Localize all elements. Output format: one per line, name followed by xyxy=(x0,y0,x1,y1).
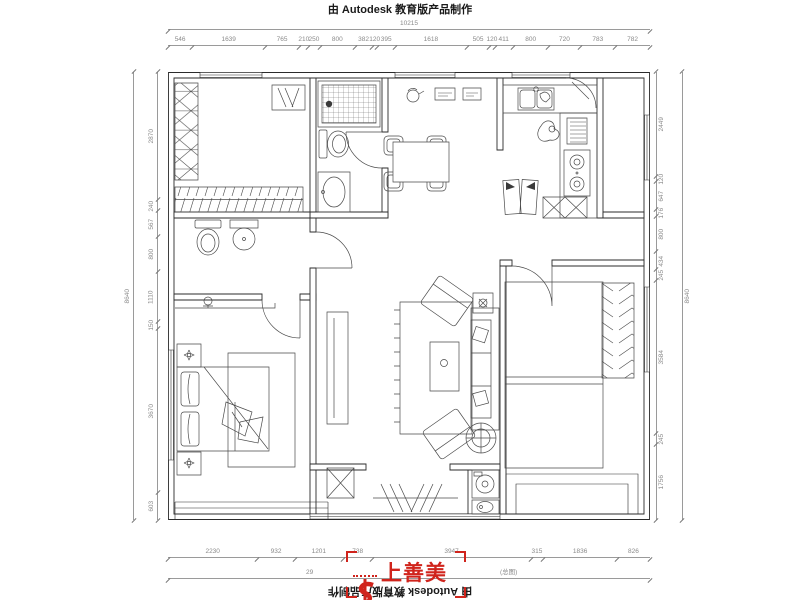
dimension-segment: 1618 xyxy=(395,34,467,46)
dimension-segment: 783 xyxy=(580,34,615,46)
bay-window-left xyxy=(175,502,328,520)
round-side-table xyxy=(466,423,496,453)
dimension-segment: 2870 xyxy=(146,72,158,200)
kitchen-sink xyxy=(518,87,554,110)
closet-rail-band xyxy=(175,187,303,212)
dimension-segment: 411 xyxy=(495,34,513,46)
window-right-1 xyxy=(645,115,650,180)
dimension-segment: 603 xyxy=(146,493,158,520)
dimension-segment: 546 xyxy=(168,34,192,46)
bedroom-1-door xyxy=(262,300,300,338)
toilet-2 xyxy=(195,220,221,255)
bay-window-right xyxy=(506,474,638,514)
dimension-segment: 1756 xyxy=(656,445,668,520)
bathroom-sink-1 xyxy=(318,172,350,212)
dimension-segment: 1639 xyxy=(192,34,265,46)
entry-door xyxy=(566,78,596,108)
bed-2 xyxy=(505,282,603,468)
bathroom-sink-2 xyxy=(230,220,258,250)
logo-s-icon xyxy=(352,574,378,600)
coffee-table xyxy=(430,342,459,391)
gas-stove xyxy=(564,150,590,196)
autodesk-banner-top-text: 由 Autodesk 教育版产品制作 xyxy=(328,4,472,16)
logo-company-name: 上善美居 xyxy=(381,554,466,600)
nightstand-1 xyxy=(177,344,201,367)
dimension-segment: 250 xyxy=(308,34,319,46)
dimension-segment: 8640 xyxy=(682,72,694,520)
tv-unit xyxy=(327,312,348,424)
wardrobe-hanging xyxy=(602,283,634,378)
dimension-segment: 3584 xyxy=(656,281,668,435)
washing-machine xyxy=(472,470,499,498)
window-left xyxy=(169,350,174,460)
dimension-segment: 800 xyxy=(320,34,356,46)
logo-stamp: 上善美居 xyxy=(346,551,466,598)
dimension-segment: 395 xyxy=(377,34,395,46)
autodesk-banner-top: 由 Autodesk 教育版产品制作 xyxy=(0,1,800,17)
nightstand-2 xyxy=(177,452,201,475)
armchair-top xyxy=(420,275,474,327)
dimension-segment: 315 xyxy=(531,546,544,558)
dimension-segment: 932 xyxy=(257,546,294,558)
dimension-segment: 2230 xyxy=(168,546,257,558)
bathroom-2-door xyxy=(316,232,352,268)
dimension-segment: 800 xyxy=(146,237,158,273)
dining-table xyxy=(393,142,449,182)
window-top-1 xyxy=(200,73,262,78)
refrigerator xyxy=(503,179,538,214)
shoe-cabinet xyxy=(272,85,305,110)
shower-area xyxy=(318,81,380,127)
window-top-3 xyxy=(512,73,570,78)
dim-left-overall: 8640 xyxy=(122,72,134,520)
dimension-segment: 720 xyxy=(548,34,580,46)
appliance-labels xyxy=(407,88,481,102)
dimension-segment: 3670 xyxy=(146,329,158,493)
dimension-segment: 240 xyxy=(146,200,158,211)
floorplan-sheet: 由 Autodesk 教育版产品制作 10215 546163976521025… xyxy=(0,0,800,600)
dim-top-overall: 10215 xyxy=(168,18,650,30)
double-bed xyxy=(177,367,269,451)
balcony-glazing xyxy=(310,514,500,519)
window-top-2 xyxy=(395,73,455,78)
dimension-segment: 1201 xyxy=(295,546,343,558)
wardrobe-x-cabinet xyxy=(175,83,198,180)
dimension-segment: 782 xyxy=(615,34,650,46)
dimension-segment: 210 xyxy=(299,34,308,46)
dim-chain-top: 5461639765210250800382120395161850512041… xyxy=(168,34,650,46)
dim-chain-right: 244912064717680043424535842451756 xyxy=(656,72,668,520)
dim-right-overall: 8640 xyxy=(682,72,694,520)
dimension-segment: 800 xyxy=(513,34,549,46)
toilet-1 xyxy=(319,130,349,158)
duct-box-kitchen xyxy=(543,197,587,218)
kitchen-counter xyxy=(503,85,597,218)
dimension-segment: 765 xyxy=(265,34,299,46)
dimension-segment: 1836 xyxy=(543,546,617,558)
bathroom-1-door xyxy=(346,132,382,168)
bedroom-2-door xyxy=(512,266,552,306)
drying-rack xyxy=(373,484,458,512)
dimension-segment: 10215 xyxy=(168,18,650,30)
dimension-segment: 647 xyxy=(656,182,668,210)
figure-scribble xyxy=(538,121,559,141)
floor-plan-drawing xyxy=(168,72,650,520)
sheet-number: 29 xyxy=(306,569,313,576)
sofa xyxy=(471,308,499,430)
dimension-segment: 567 xyxy=(146,211,158,236)
side-table-lamp xyxy=(473,293,493,313)
duct-box-balcony xyxy=(327,468,354,498)
sheet-label: (总图) xyxy=(500,566,517,576)
dimension-segment: 800 xyxy=(656,217,668,251)
dimension-segment: 826 xyxy=(617,546,650,558)
dimension-segment: 8640 xyxy=(122,72,134,520)
dim-chain-left: 287024056780011101503670603 xyxy=(146,72,158,520)
window-right-2 xyxy=(645,287,650,372)
radiator xyxy=(567,118,587,144)
living-rug xyxy=(394,302,472,434)
area-rug-bedroom xyxy=(228,353,295,467)
dimension-segment: 2449 xyxy=(656,72,668,177)
mop-sink xyxy=(472,500,499,514)
dimension-segment: 1110 xyxy=(146,272,158,322)
